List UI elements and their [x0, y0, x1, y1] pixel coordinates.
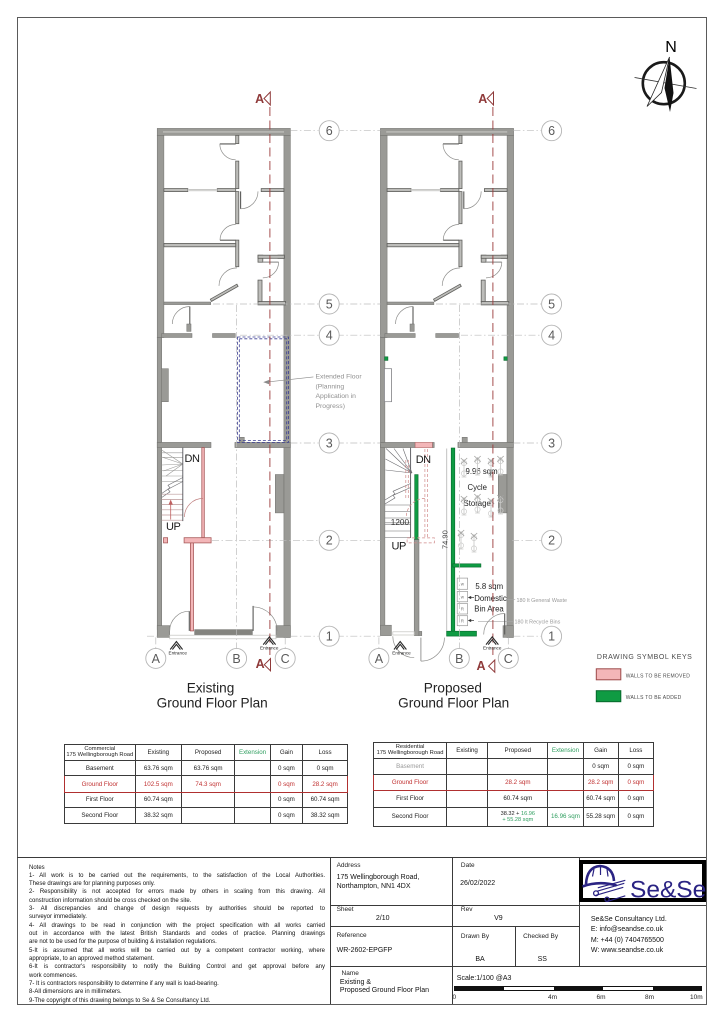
- svg-text:A: A: [375, 652, 384, 666]
- svg-text:Entrance: Entrance: [260, 646, 279, 651]
- svg-text:3: 3: [326, 436, 333, 450]
- svg-text:Ground Floor Plan: Ground Floor Plan: [398, 696, 509, 711]
- svg-text:Progress): Progress): [316, 403, 345, 410]
- svg-text:1200: 1200: [391, 518, 410, 527]
- svg-text:180 lt Recycle Bins: 180 lt Recycle Bins: [515, 620, 561, 626]
- svg-text:UP: UP: [392, 541, 406, 553]
- svg-text:3: 3: [548, 436, 555, 450]
- svg-text:DRAWING SYMBOL KEYS: DRAWING SYMBOL KEYS: [597, 654, 693, 661]
- svg-text:Cycle: Cycle: [468, 483, 488, 492]
- svg-text:2: 2: [548, 534, 555, 548]
- svg-text:Application in: Application in: [316, 393, 357, 400]
- svg-text:2: 2: [326, 534, 333, 548]
- svg-text:UP: UP: [166, 521, 180, 533]
- svg-text:Proposed: Proposed: [424, 681, 482, 696]
- svg-text:A: A: [255, 92, 264, 106]
- svg-text:WALLS TO BE REMOVED: WALLS TO BE REMOVED: [626, 673, 691, 679]
- svg-text:180 lt General Waste: 180 lt General Waste: [517, 598, 567, 604]
- svg-text:Entrance: Entrance: [169, 651, 188, 656]
- svg-text:5: 5: [326, 297, 333, 311]
- svg-text:Ground Floor Plan: Ground Floor Plan: [157, 696, 268, 711]
- svg-text:B: B: [455, 652, 463, 666]
- svg-text:DN: DN: [185, 453, 200, 465]
- svg-text:C: C: [504, 652, 513, 666]
- svg-text:C: C: [281, 652, 290, 666]
- svg-text:A: A: [478, 92, 487, 106]
- svg-text:6: 6: [326, 124, 333, 138]
- svg-text:Existing: Existing: [187, 681, 235, 696]
- svg-text:Domestic: Domestic: [474, 594, 507, 603]
- svg-text:A: A: [476, 659, 485, 673]
- svg-text:5: 5: [548, 297, 555, 311]
- svg-text:WALLS TO BE ADDED: WALLS TO BE ADDED: [626, 695, 682, 701]
- svg-text:N: N: [665, 39, 677, 56]
- svg-text:5.8 sqm: 5.8 sqm: [475, 582, 503, 591]
- svg-text:Entrance: Entrance: [392, 651, 411, 656]
- svg-text:1: 1: [548, 630, 555, 644]
- svg-text:A: A: [152, 652, 161, 666]
- svg-text:4: 4: [326, 329, 333, 343]
- svg-text:1: 1: [326, 630, 333, 644]
- svg-text:(Planning: (Planning: [316, 383, 345, 390]
- svg-text:B: B: [232, 652, 240, 666]
- svg-text:74.90: 74.90: [441, 530, 450, 549]
- svg-text:Entrance: Entrance: [483, 646, 502, 651]
- svg-text:Se&Se: Se&Se: [630, 876, 706, 903]
- svg-text:A: A: [256, 657, 265, 671]
- svg-text:Bin Area: Bin Area: [474, 605, 504, 614]
- svg-text:6: 6: [548, 124, 555, 138]
- svg-text:4: 4: [548, 329, 555, 343]
- svg-text:DN: DN: [416, 454, 431, 466]
- svg-text:Extended Floor: Extended Floor: [316, 374, 363, 381]
